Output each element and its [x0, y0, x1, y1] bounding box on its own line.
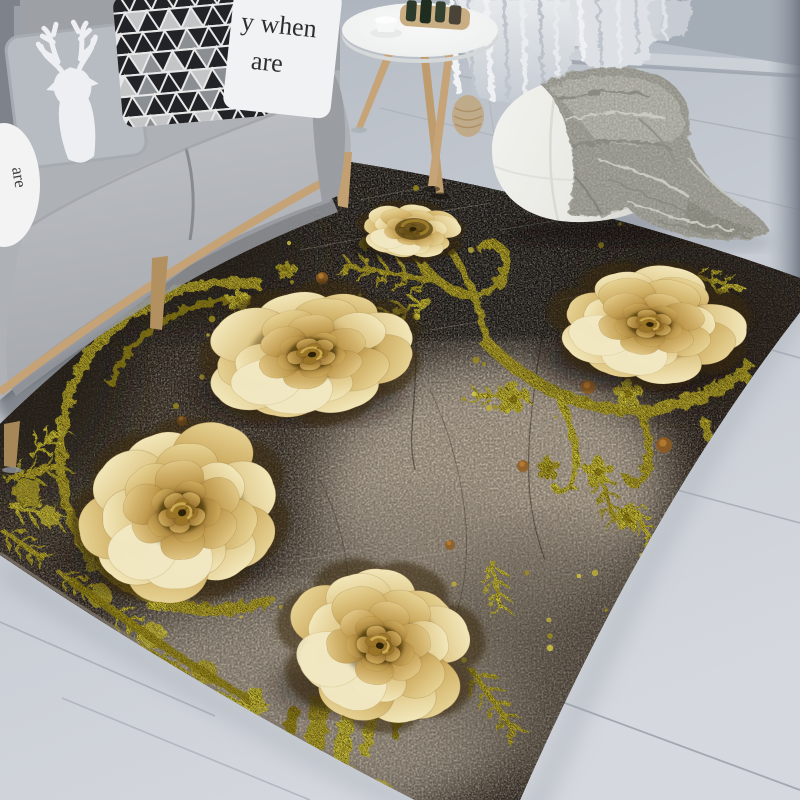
svg-text:are: are	[8, 165, 30, 189]
svg-text:are: are	[250, 46, 285, 78]
